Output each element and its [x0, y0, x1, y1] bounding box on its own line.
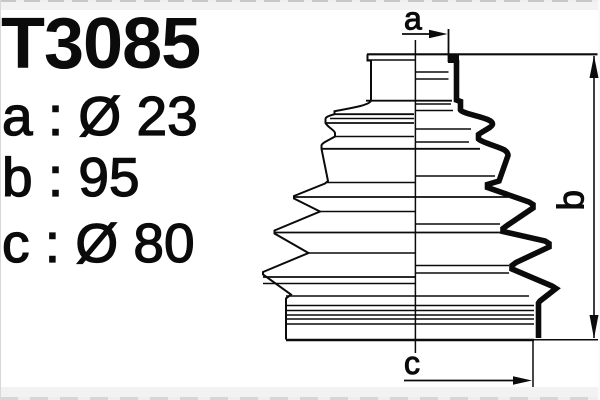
svg-text:c: c [404, 345, 420, 381]
svg-text:a: a [404, 1, 422, 37]
svg-text:b: b [551, 190, 592, 211]
